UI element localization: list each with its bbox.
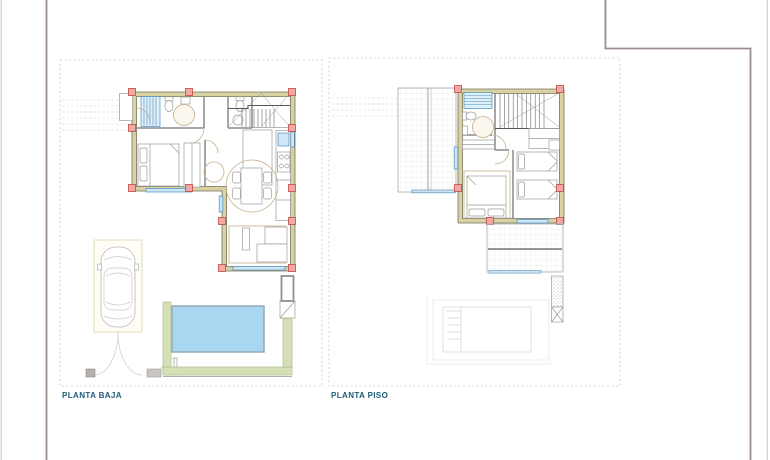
column [186, 89, 193, 96]
window [219, 196, 223, 212]
sink-icon [181, 97, 190, 104]
vanity-basin-icon [174, 105, 195, 126]
column [557, 86, 564, 93]
wc-ground [233, 97, 244, 125]
column [219, 265, 226, 272]
pool-terrace [283, 318, 292, 367]
pillow-icon [519, 154, 525, 169]
swimming-pool [172, 306, 264, 352]
boundary-wall [147, 369, 161, 377]
pool-terrace [163, 367, 292, 375]
balcony-railing [489, 271, 541, 274]
column [289, 89, 296, 96]
hall-rug [204, 162, 224, 182]
pool-area [163, 276, 295, 377]
pillow-icon [488, 209, 504, 216]
column [557, 185, 564, 192]
column [289, 185, 296, 192]
column [186, 185, 193, 192]
bathroom-ground [141, 97, 204, 145]
chair-icon [233, 172, 241, 183]
roof-terrace-grid [398, 88, 456, 192]
toilet-icon [466, 112, 476, 120]
door-swing-arc [188, 128, 204, 144]
living-room [229, 226, 287, 263]
roof-terrace [398, 88, 456, 193]
plan-ground-floor: PLANTA BAJA [60, 60, 322, 400]
kitchen-sink-icon [278, 133, 289, 146]
column [455, 185, 462, 192]
sofa [257, 244, 287, 262]
sofa [265, 227, 287, 244]
pillow-icon [140, 166, 147, 181]
column [129, 89, 136, 96]
vanity-basin-icon [473, 117, 494, 138]
dining-area [226, 160, 278, 212]
plan-upper-floor: PLANTA PISO [329, 58, 620, 400]
kitchen [276, 131, 291, 221]
chair-icon [264, 188, 272, 199]
pillow-icon [519, 182, 525, 197]
toilet-icon [165, 101, 173, 112]
pillow-icon [469, 209, 485, 216]
toilet-icon [236, 101, 244, 112]
window [454, 147, 458, 169]
bedroom-ground [138, 140, 218, 187]
frame-title-block-notch [606, 0, 751, 460]
balcony-grid [487, 224, 563, 272]
door-swing-arc [495, 150, 509, 164]
shelf [549, 140, 560, 150]
balcony [487, 224, 563, 273]
column [289, 218, 296, 225]
drawing-sheet: PLANTA BAJA [0, 0, 770, 460]
boundary-wall [86, 369, 95, 377]
plan-label: PLANTA PISO [331, 391, 388, 400]
floor-plan-drawing: PLANTA BAJA [0, 0, 770, 460]
window [233, 266, 285, 270]
pool-ghost-outline [427, 295, 552, 364]
column [129, 185, 136, 192]
column [455, 86, 462, 93]
terrace-railing [412, 190, 455, 193]
column [219, 218, 226, 225]
window [291, 132, 295, 147]
utility-closet [282, 276, 294, 301]
carport-pergola-lines [62, 100, 128, 130]
column [289, 125, 296, 132]
pergola-ghost-lines [332, 98, 398, 116]
column [487, 218, 494, 225]
chimney-shaft [552, 276, 564, 322]
dining-table [241, 168, 262, 204]
window [517, 219, 548, 223]
chair-icon [264, 172, 272, 183]
entry-porch [120, 94, 133, 121]
pillow-icon [140, 148, 147, 163]
bedroom-upper-master [464, 171, 510, 218]
door-swing-arc [205, 140, 218, 153]
shower-icon [464, 93, 492, 109]
plan-label: PLANTA BAJA [62, 391, 122, 400]
gate-swing-arc [94, 332, 142, 375]
bedroom-upper-twin [517, 152, 557, 199]
car-icon [98, 247, 139, 327]
column [289, 265, 296, 272]
column [129, 125, 136, 132]
pool-terrace [163, 302, 171, 375]
chair-icon [233, 188, 241, 199]
sink-icon [463, 126, 468, 135]
tv-unit [243, 228, 250, 250]
column [557, 218, 564, 225]
